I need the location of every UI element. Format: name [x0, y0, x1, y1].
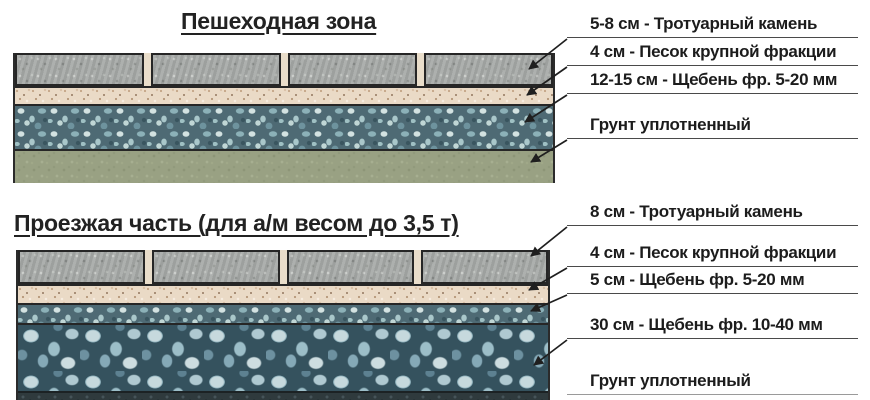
- paving-block: [151, 53, 280, 86]
- paving-block: [421, 250, 548, 284]
- crushed-stone-small-layer: [18, 303, 548, 323]
- sand-layer: [15, 86, 553, 104]
- layer-label-sand: 4 см - Песок крупной фракции: [567, 243, 858, 267]
- paving-block: [424, 53, 553, 86]
- diagram-roadway: [16, 250, 550, 400]
- paving-block: [18, 250, 145, 284]
- section-title-roadway: Проезжая часть (для а/м весом до 3,5 т): [14, 210, 459, 237]
- layer-label-soil: Грунт уплотненный: [567, 371, 858, 395]
- diagram-pedestrian: [13, 53, 555, 183]
- crushed-stone-layer: [15, 104, 553, 149]
- layer-label-soil: Грунт уплотненный: [567, 115, 858, 139]
- paving-block: [287, 250, 414, 284]
- paving-block: [288, 53, 417, 86]
- layer-label-paving-stone: 8 см - Тротуарный камень: [567, 202, 858, 226]
- paving-block: [152, 250, 279, 284]
- sand-layer: [18, 284, 548, 303]
- layer-label-crushed-stone: 12-15 см - Щебень фр. 5-20 мм: [567, 70, 858, 94]
- layer-label-sand: 4 см - Песок крупной фракции: [567, 42, 858, 66]
- layer-label-paving-stone: 5-8 см - Тротуарный камень: [567, 14, 858, 38]
- layer-label-crushed-stone-large: 30 см - Щебень фр. 10-40 мм: [567, 315, 858, 339]
- paving-block: [15, 53, 144, 86]
- paving-blocks-row: [18, 250, 548, 284]
- paving-blocks-row: [15, 53, 553, 86]
- layer-label-crushed-stone-small: 5 см - Щебень фр. 5-20 мм: [567, 270, 858, 294]
- pavement-layers-diagram: Пешеходная зона 5-8 см - Тротуарный каме…: [0, 0, 870, 400]
- compacted-soil-layer: [18, 391, 548, 400]
- compacted-soil-layer: [15, 149, 553, 183]
- crushed-stone-large-layer: [18, 323, 548, 391]
- section-title-pedestrian: Пешеходная зона: [181, 8, 376, 35]
